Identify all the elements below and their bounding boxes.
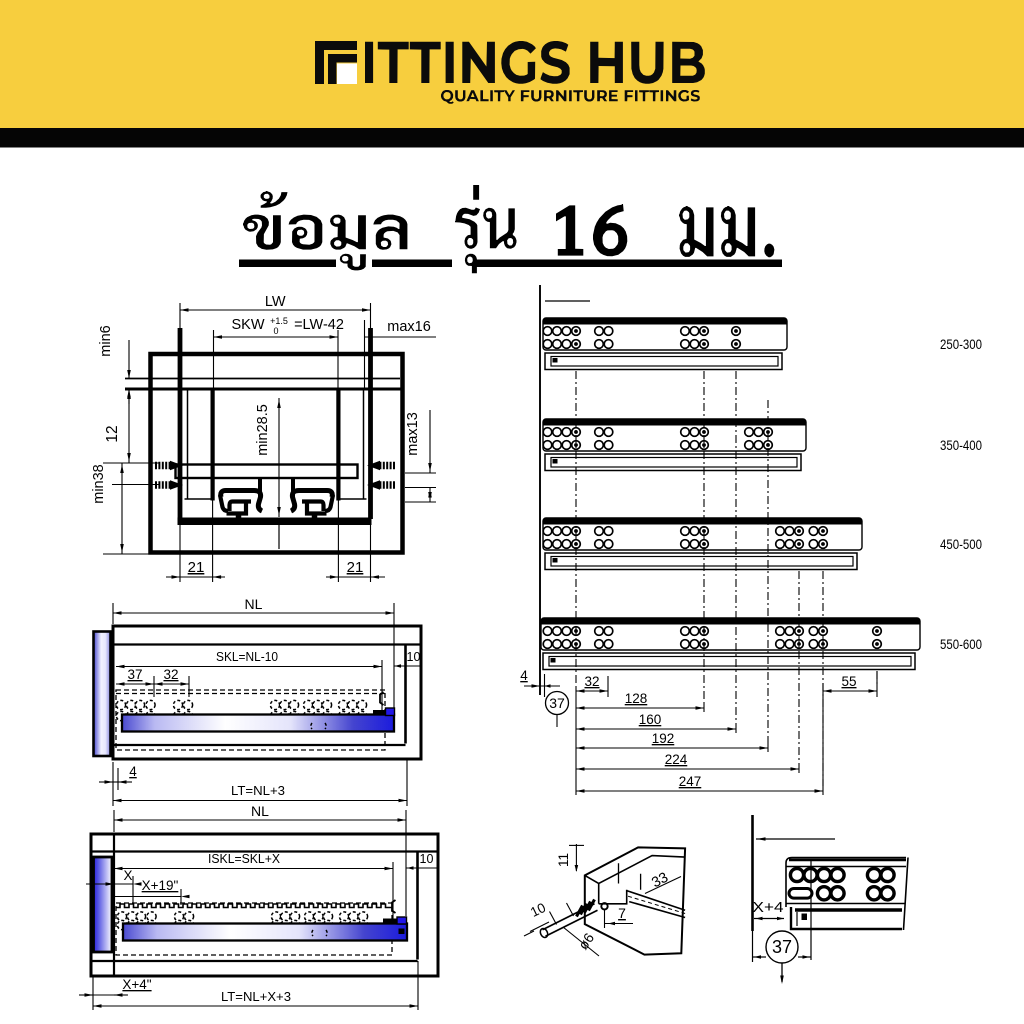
svg-text:160: 160	[639, 712, 662, 727]
svg-text:21: 21	[188, 559, 205, 576]
svg-text:7: 7	[618, 905, 626, 921]
svg-text:32: 32	[584, 674, 599, 689]
svg-text:37: 37	[772, 937, 792, 957]
svg-text:37: 37	[549, 695, 565, 711]
svg-text:+1.5: +1.5	[270, 316, 288, 326]
svg-text:max16: max16	[387, 319, 431, 335]
svg-text:450-500: 450-500	[940, 537, 982, 552]
svg-text:224: 224	[665, 752, 688, 767]
svg-text:32: 32	[163, 667, 178, 682]
svg-text:4: 4	[520, 668, 528, 683]
svg-text:X: X	[123, 868, 132, 883]
svg-text:37: 37	[127, 667, 142, 682]
svg-text:X+19": X+19"	[142, 878, 179, 893]
svg-text:10: 10	[420, 852, 434, 866]
svg-text:NL: NL	[245, 596, 263, 612]
svg-text:X+4: X+4	[753, 899, 784, 916]
svg-text:ISKL=SKL+X: ISKL=SKL+X	[208, 851, 280, 866]
svg-text:247: 247	[679, 774, 702, 789]
svg-text:128: 128	[625, 691, 648, 706]
svg-text:4: 4	[129, 764, 137, 779]
svg-text:X+4": X+4"	[122, 977, 151, 992]
svg-text:0: 0	[273, 326, 278, 336]
svg-text:SKW: SKW	[231, 317, 264, 333]
svg-text:min38: min38	[91, 464, 107, 504]
svg-text:LT=NL+3: LT=NL+3	[231, 783, 285, 798]
svg-text:min6: min6	[98, 325, 114, 356]
svg-text:min28.5: min28.5	[255, 404, 271, 456]
svg-text:33: 33	[649, 870, 671, 892]
svg-text:max13: max13	[405, 412, 421, 456]
svg-text:LW: LW	[265, 294, 286, 310]
svg-text:12: 12	[104, 425, 121, 442]
svg-text:SKL=NL-10: SKL=NL-10	[216, 649, 278, 664]
svg-text:LT=NL+X+3: LT=NL+X+3	[221, 989, 291, 1004]
svg-text:55: 55	[841, 674, 856, 689]
svg-text:=LW-42: =LW-42	[294, 317, 344, 333]
svg-text:21: 21	[347, 559, 364, 576]
svg-text:11: 11	[556, 853, 571, 867]
svg-text:250-300: 250-300	[940, 337, 982, 352]
svg-text:10: 10	[528, 900, 548, 920]
svg-text:10: 10	[407, 650, 421, 664]
svg-text:ø6: ø6	[575, 930, 598, 953]
svg-text:NL: NL	[251, 803, 269, 819]
svg-text:550-600: 550-600	[940, 637, 982, 652]
svg-text:192: 192	[652, 731, 675, 746]
svg-text:350-400: 350-400	[940, 438, 982, 453]
